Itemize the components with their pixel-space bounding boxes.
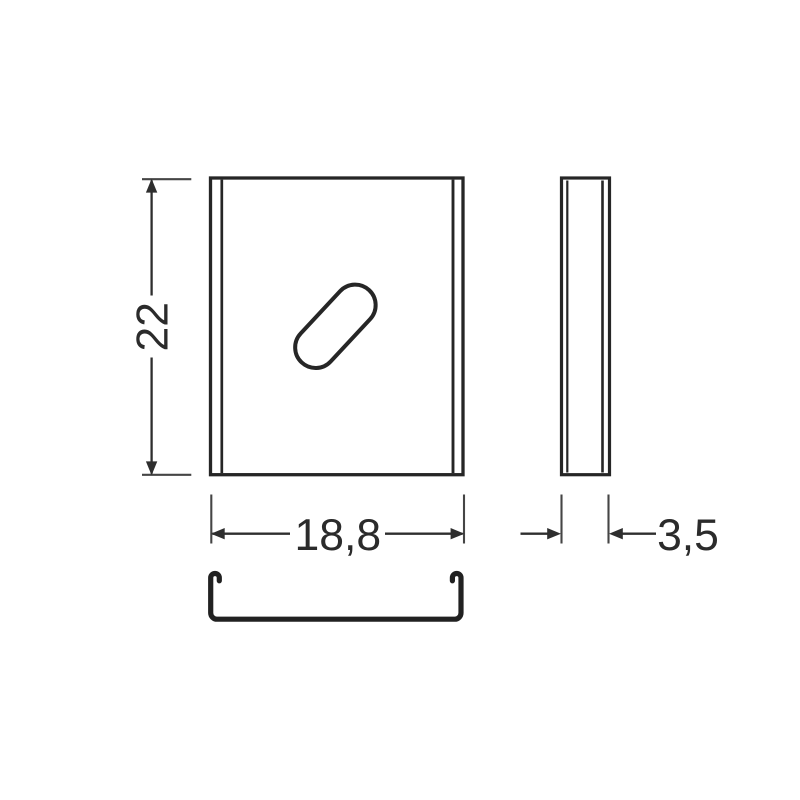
svg-text:3,5: 3,5 [657, 511, 719, 560]
svg-text:22: 22 [129, 302, 178, 352]
svg-text:18,8: 18,8 [294, 511, 381, 560]
